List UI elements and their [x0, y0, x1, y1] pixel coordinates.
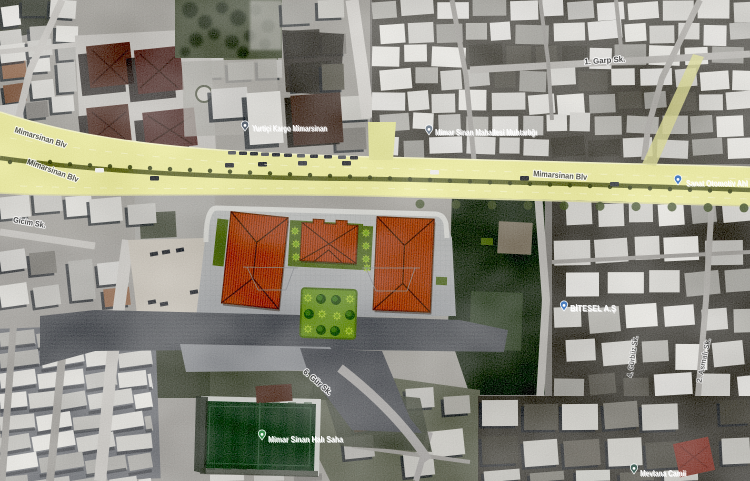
svg-text:Mimar Sinan Mahallesi Muhtarlı: Mimar Sinan Mahallesi Muhtarlığı — [435, 128, 537, 137]
svg-text:Sanat Otomotiv Ahl S: Sanat Otomotiv Ahl S — [686, 179, 750, 188]
svg-text:BİTESEL A.Ş: BİTESEL A.Ş — [570, 304, 617, 313]
svg-text:Mimar Sinan Halı Saha: Mimar Sinan Halı Saha — [268, 435, 343, 444]
svg-text:Mevlana Camii: Mevlana Camii — [640, 469, 686, 478]
svg-text:Yurtiçi Kargo Mimarsinan: Yurtiçi Kargo Mimarsinan — [252, 124, 327, 133]
